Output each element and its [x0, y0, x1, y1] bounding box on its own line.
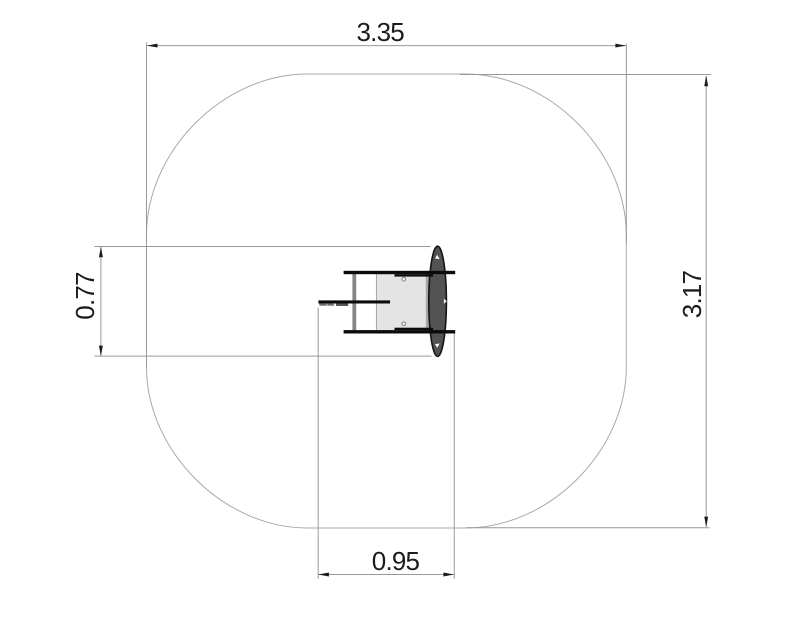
- svg-text:0.77: 0.77: [70, 272, 100, 320]
- svg-text:3.17: 3.17: [677, 270, 707, 318]
- svg-text:0.95: 0.95: [372, 546, 420, 576]
- svg-text:3.35: 3.35: [356, 17, 404, 47]
